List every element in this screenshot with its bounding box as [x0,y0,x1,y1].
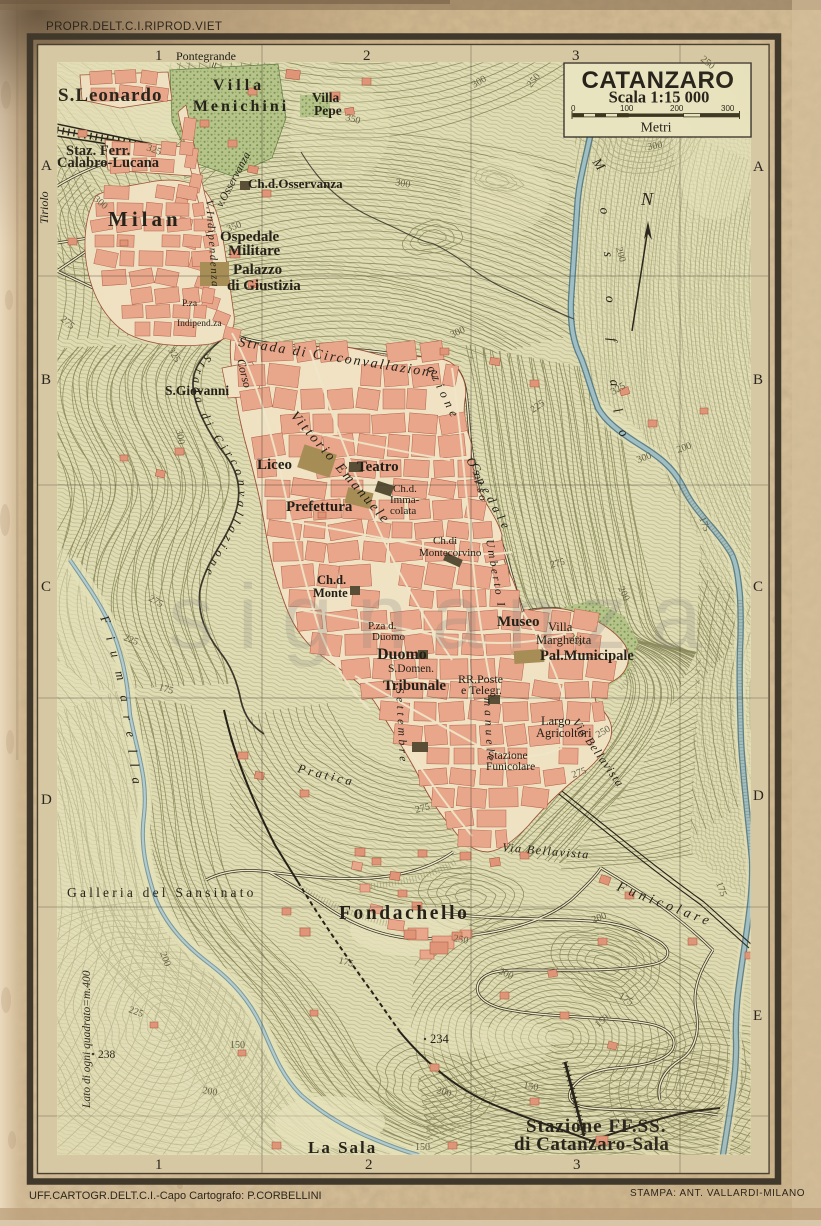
svg-text:B: B [753,372,763,388]
svg-text:3: 3 [573,1157,581,1173]
svg-text:2: 2 [365,1157,373,1173]
svg-text:3: 3 [572,48,580,64]
svg-text:C: C [41,579,51,595]
svg-text:C: C [753,579,763,595]
svg-text:Tiriolo: Tiriolo [37,191,51,224]
svg-text:A: A [41,158,52,174]
svg-text:D: D [753,788,764,804]
svg-text:E: E [753,1008,762,1024]
svg-text:PROPR.DELT.C.I.RIPROD.VIET: PROPR.DELT.C.I.RIPROD.VIET [46,21,222,33]
svg-text:UFF.CARTOGR.DELT.C.I.-Capo Car: UFF.CARTOGR.DELT.C.I.-Capo Cartografo: P… [29,1190,322,1202]
svg-text:D: D [41,792,52,808]
svg-text:1: 1 [155,48,163,64]
svg-text:Pontegrande: Pontegrande [176,49,236,63]
svg-text:STAMPA: ANT. VALLARDI-MILANO: STAMPA: ANT. VALLARDI-MILANO [630,1188,805,1199]
svg-text:A: A [753,159,764,175]
svg-text:B: B [41,372,51,388]
svg-text:1: 1 [155,1157,163,1173]
svg-text:2: 2 [363,48,371,64]
